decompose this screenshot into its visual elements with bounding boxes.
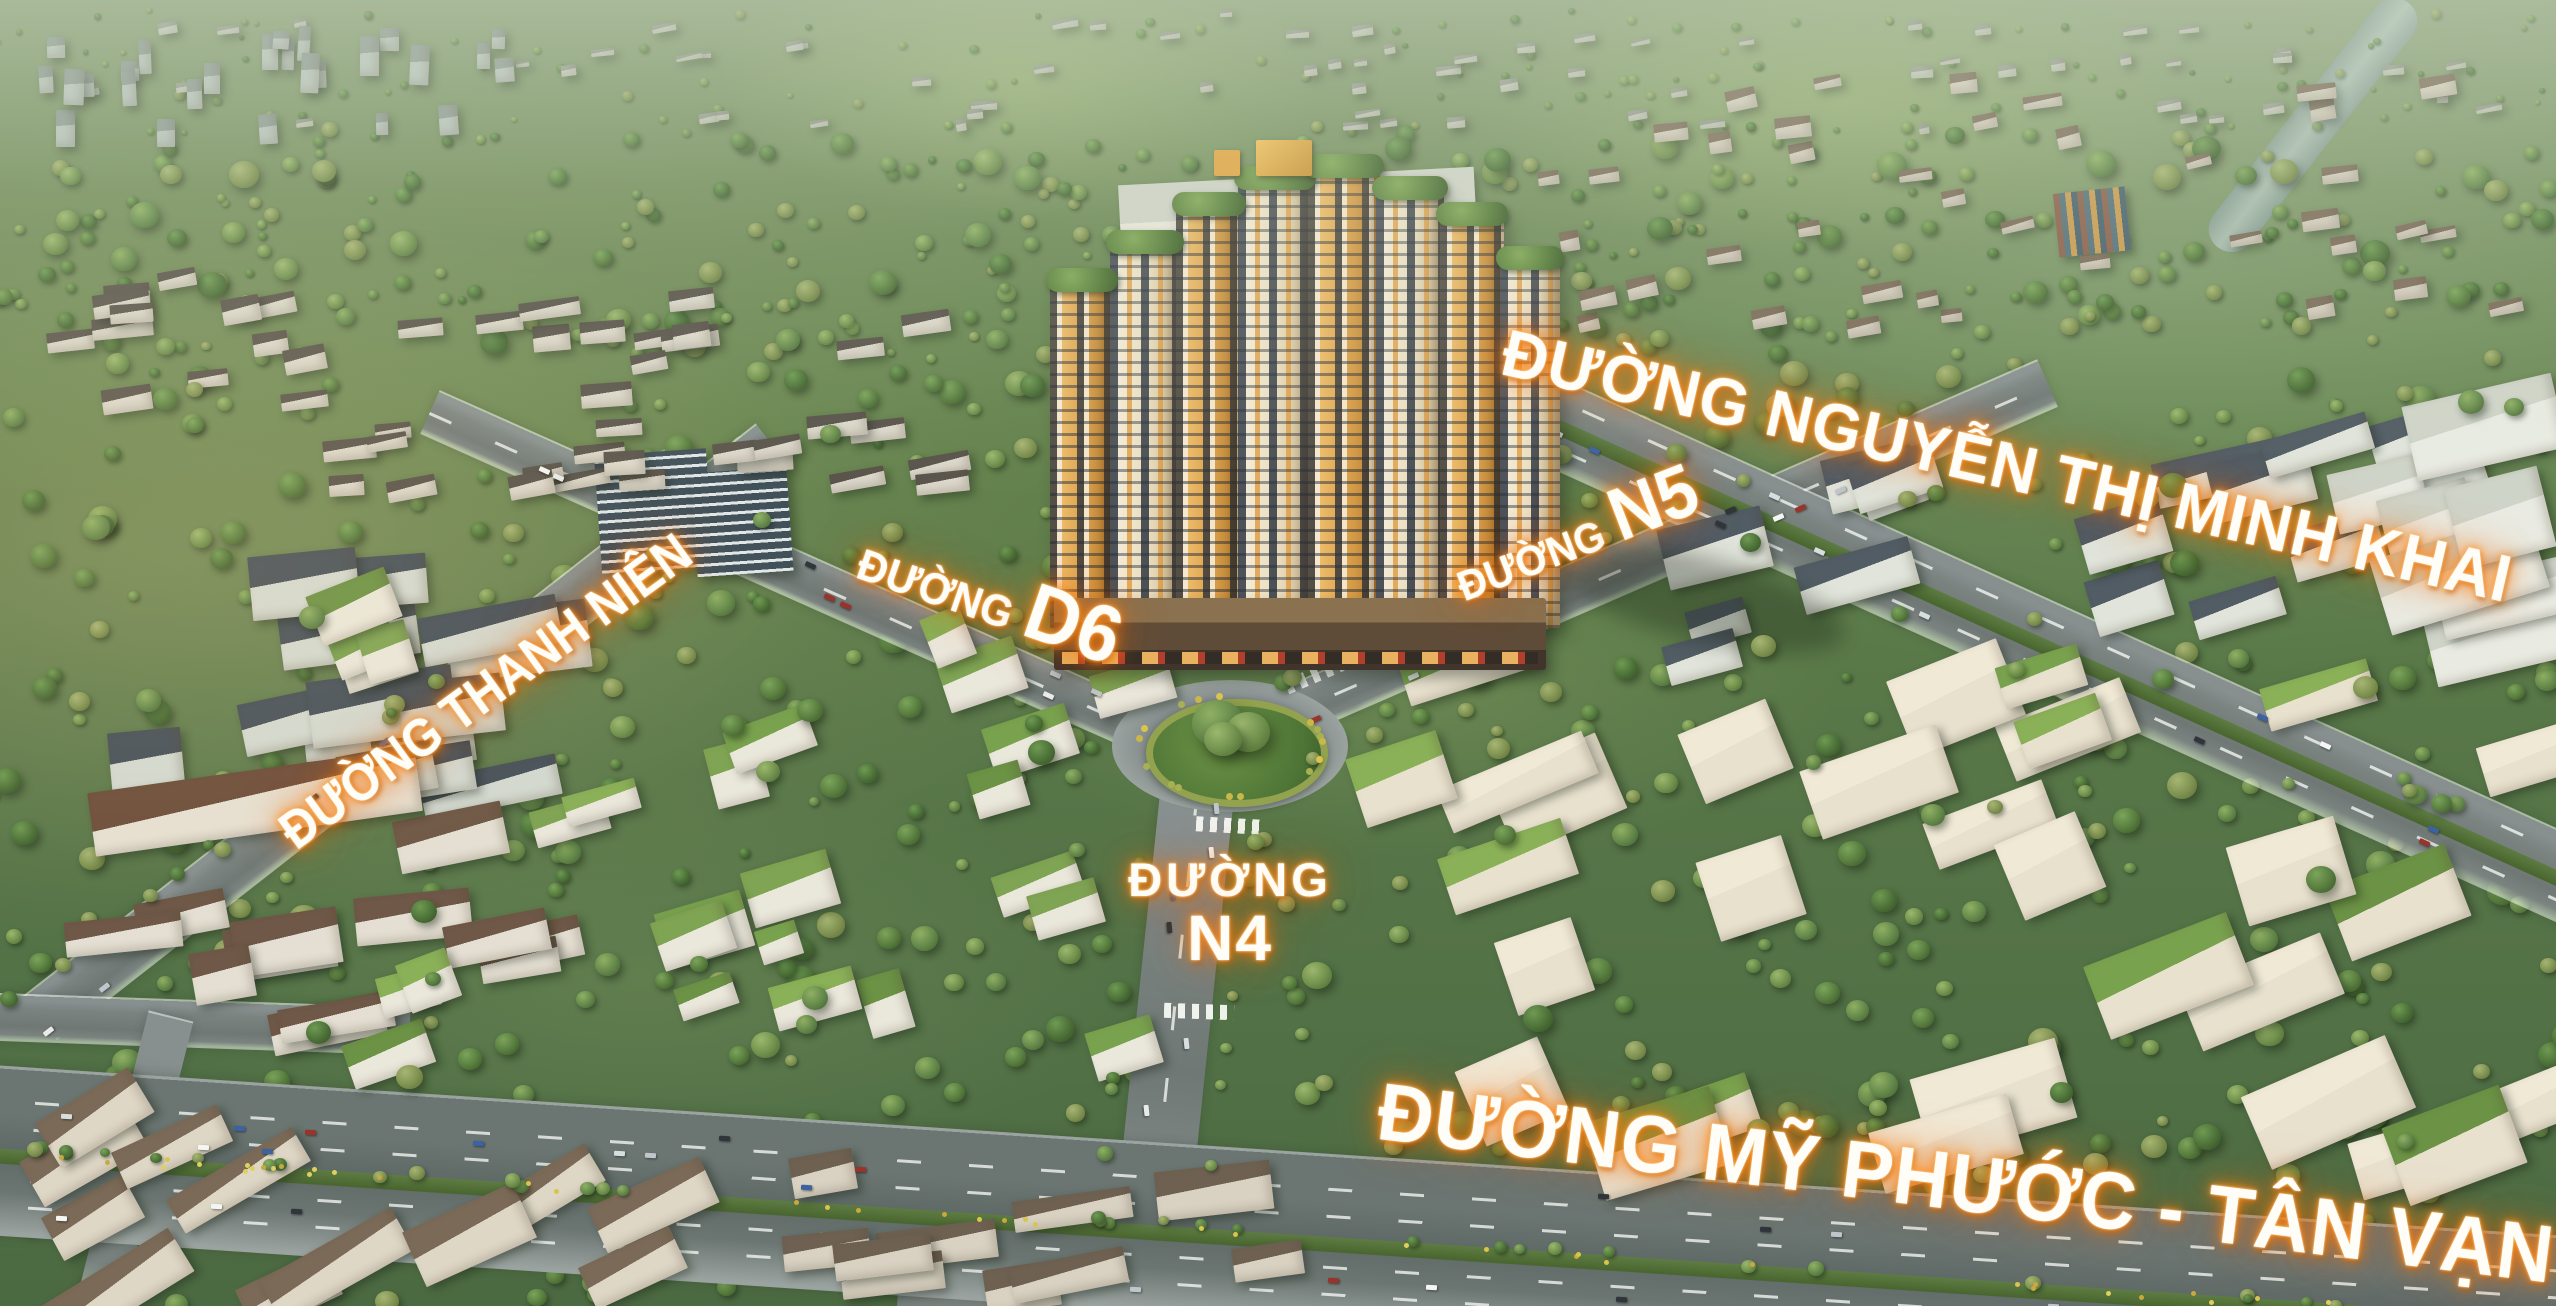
building	[329, 474, 365, 497]
tree	[1650, 330, 1669, 347]
tree	[2193, 1124, 2221, 1149]
tree	[357, 218, 372, 232]
tree	[2183, 242, 2205, 261]
tree	[595, 953, 620, 976]
rooftop-garden	[1172, 192, 1246, 216]
tree	[2312, 122, 2323, 132]
aerial-masterplan-scene: ĐƯỜNG THANH NIÊN ĐƯỜNG D6 ĐƯỜNG N5 ĐƯỜNG…	[0, 0, 2556, 1306]
tree	[160, 165, 182, 185]
tree	[788, 298, 799, 308]
tree	[2397, 1134, 2414, 1149]
tree	[2442, 246, 2454, 257]
tree	[390, 231, 418, 256]
tree	[2334, 289, 2346, 300]
tree	[721, 313, 732, 323]
building	[1653, 121, 1689, 142]
tree	[730, 132, 748, 148]
tree	[1629, 248, 1638, 256]
building	[492, 29, 505, 49]
roundabout-flowers	[1314, 726, 1321, 733]
median-flowers	[2139, 1295, 2144, 1300]
tree	[1091, 1211, 1106, 1224]
building	[300, 53, 319, 94]
tree	[915, 1057, 940, 1080]
tree	[911, 926, 938, 951]
building	[494, 58, 515, 83]
tree	[2540, 958, 2556, 973]
tree	[1959, 167, 1974, 180]
tree	[2402, 784, 2417, 797]
tree	[637, 199, 654, 215]
building	[1351, 83, 1366, 95]
tree	[1548, 1242, 1562, 1255]
tree	[721, 715, 744, 736]
tree	[748, 223, 763, 237]
tree	[94, 13, 101, 19]
tree	[593, 249, 612, 266]
tree	[495, 1033, 519, 1055]
tree	[1028, 152, 1044, 167]
tree	[2431, 9, 2441, 18]
tree	[1256, 56, 1266, 65]
building	[716, 110, 729, 120]
rooftop-garden	[1304, 154, 1384, 178]
roundabout-flowers	[1226, 793, 1233, 800]
tree	[2157, 1116, 2168, 1126]
tree	[2228, 123, 2234, 129]
tree	[672, 868, 690, 884]
car	[233, 1125, 244, 1131]
building	[409, 44, 430, 85]
tree	[2446, 285, 2471, 308]
tree	[2116, 89, 2125, 97]
building	[1200, 82, 1214, 93]
building	[438, 105, 459, 136]
tree	[555, 754, 568, 766]
tree	[1437, 93, 1444, 100]
building	[1919, 123, 1930, 134]
building	[1383, 43, 1395, 55]
tree	[375, 1291, 398, 1306]
tree	[1887, 19, 1893, 24]
tree	[1962, 901, 1986, 922]
tree	[313, 136, 325, 147]
median-flowers	[332, 1170, 337, 1175]
median-flowers	[1750, 1262, 1755, 1267]
tree	[1905, 908, 1924, 925]
tree	[242, 56, 249, 62]
tree	[603, 679, 623, 697]
tree	[1833, 127, 1840, 133]
tree	[2142, 316, 2160, 333]
tree	[2403, 103, 2411, 110]
tree	[2504, 398, 2524, 416]
tree	[1720, 47, 1728, 54]
tree	[1653, 185, 1666, 196]
tree	[1392, 876, 1407, 890]
building	[2321, 164, 2359, 184]
tree	[1885, 207, 1904, 224]
tree	[1987, 800, 2003, 814]
tower-slab	[1376, 186, 1444, 628]
roundabout-flowers	[1178, 701, 1185, 708]
median-flowers	[1604, 1260, 1609, 1265]
tree	[787, 257, 798, 267]
tree	[1107, 982, 1130, 1003]
tree	[2225, 76, 2231, 82]
tree	[1066, 1104, 1086, 1122]
tree	[776, 329, 801, 351]
tree	[2270, 159, 2298, 184]
building	[1286, 29, 1309, 38]
tree	[1878, 952, 1894, 966]
tree	[396, 1065, 423, 1089]
tree	[1864, 712, 1879, 725]
car	[305, 1130, 316, 1136]
building	[187, 79, 203, 109]
tree	[368, 196, 376, 203]
tree	[2292, 317, 2312, 335]
tree	[858, 389, 879, 408]
tree	[2458, 390, 2484, 414]
tree	[1028, 740, 1055, 765]
tree	[880, 157, 896, 172]
tree	[2473, 1064, 2490, 1079]
tree	[150, 1153, 161, 1163]
car	[801, 1185, 812, 1191]
tree	[438, 293, 451, 304]
building	[603, 450, 645, 476]
tree	[2484, 180, 2508, 201]
tree	[1922, 27, 1932, 36]
tree	[212, 97, 221, 106]
tree	[1646, 92, 1654, 100]
roundabout-flowers	[1319, 738, 1326, 745]
tree	[222, 222, 245, 243]
tree	[476, 135, 485, 143]
car	[198, 1145, 209, 1151]
roundabout-flowers	[1143, 763, 1150, 770]
tree	[1987, 248, 1999, 259]
building	[139, 40, 152, 75]
tree	[505, 1173, 521, 1187]
tree	[556, 869, 571, 882]
rooftop-feature	[1256, 140, 1312, 176]
tree	[74, 569, 94, 587]
tree	[753, 512, 771, 528]
tree	[1585, 239, 1598, 250]
tree	[16, 29, 23, 35]
tree	[707, 590, 735, 615]
building	[911, 76, 930, 86]
tree	[1295, 1028, 1309, 1041]
tree	[2061, 23, 2069, 31]
tree	[690, 956, 707, 972]
tree	[999, 283, 1010, 293]
building	[1908, 21, 1923, 31]
tree	[299, 606, 325, 629]
median-flowers	[2106, 1291, 2111, 1296]
tree	[55, 958, 71, 972]
tree	[969, 332, 978, 341]
building	[56, 110, 75, 147]
tree	[2353, 676, 2378, 698]
tree	[699, 262, 722, 283]
tree	[2035, 213, 2052, 228]
building	[1090, 21, 1107, 31]
median-flowers	[1404, 1243, 1409, 1248]
road-label-n4-line2: N4	[1187, 905, 1273, 972]
tree	[147, 128, 154, 134]
car	[1598, 1194, 1609, 1200]
car	[1130, 1287, 1141, 1293]
tree	[623, 132, 640, 147]
building	[1708, 131, 1732, 155]
tree	[1366, 727, 1383, 743]
building	[121, 69, 136, 107]
building	[1327, 58, 1342, 69]
tree	[632, 190, 641, 198]
tree	[1846, 309, 1857, 319]
building	[47, 37, 65, 59]
building	[1517, 43, 1536, 54]
tree	[555, 840, 581, 864]
tree	[364, 11, 373, 19]
tree	[106, 353, 129, 374]
tree	[677, 647, 695, 663]
tree	[1654, 773, 1677, 794]
tree	[1751, 635, 1776, 657]
tree	[336, 308, 355, 325]
tree	[2022, 128, 2038, 142]
tree	[807, 218, 820, 229]
tree	[80, 231, 95, 244]
building	[1499, 77, 1519, 91]
tree	[1838, 841, 1866, 866]
tree	[1526, 64, 1532, 70]
rooftop-garden	[1436, 202, 1508, 226]
tree	[1407, 1236, 1419, 1246]
tree	[1651, 880, 1675, 902]
tree	[956, 159, 972, 173]
tree	[1907, 940, 1930, 960]
tree	[2397, 772, 2411, 785]
tree	[759, 145, 777, 161]
glass-office-tower	[690, 467, 793, 577]
tree	[1014, 166, 1041, 191]
tree	[576, 991, 595, 1008]
tree	[986, 79, 996, 88]
building	[2309, 97, 2337, 122]
tree	[2010, 292, 2021, 302]
tree	[11, 821, 38, 845]
tree	[1898, 491, 1916, 508]
building	[2383, 64, 2405, 75]
tree	[2265, 227, 2279, 239]
tree	[27, 1142, 43, 1156]
tree	[1494, 1241, 1507, 1252]
checker-facade-building	[2053, 186, 2131, 257]
tree	[1945, 127, 1964, 144]
tree	[820, 425, 840, 443]
tree	[751, 1032, 780, 1058]
tree	[1912, 1008, 1934, 1028]
tree	[1857, 258, 1869, 269]
tree	[214, 842, 231, 857]
tree	[729, 1046, 749, 1064]
tree	[2531, 209, 2555, 230]
building	[1797, 220, 1821, 237]
tree	[2158, 251, 2171, 263]
tree	[2535, 669, 2556, 691]
tree	[1746, 122, 1757, 132]
tree	[2189, 70, 2195, 75]
building	[1774, 115, 1812, 139]
tree	[796, 280, 820, 302]
tree	[2277, 82, 2287, 91]
tree	[2397, 386, 2413, 401]
tree	[312, 160, 337, 182]
building	[516, 60, 529, 68]
tree	[2431, 794, 2452, 813]
tree	[2243, 1294, 2253, 1303]
tree	[2113, 808, 2140, 832]
tree	[470, 522, 489, 539]
tree	[1025, 715, 1043, 731]
building	[1220, 9, 1232, 16]
tree	[2260, 318, 2271, 328]
tree	[149, 368, 159, 377]
roundabout-flowers	[1307, 719, 1314, 726]
tree	[442, 136, 454, 147]
tree	[534, 230, 549, 243]
building	[1941, 308, 1963, 323]
building	[376, 113, 389, 135]
tree	[1612, 823, 1637, 846]
tree	[56, 210, 79, 231]
building	[157, 118, 176, 147]
tree	[2356, 993, 2369, 1005]
tree	[2244, 22, 2250, 28]
tree	[1020, 374, 1045, 397]
building	[2296, 82, 2336, 101]
tree	[69, 692, 90, 711]
tree	[2540, 180, 2556, 197]
building	[966, 109, 983, 120]
tree	[1871, 889, 1897, 912]
building	[2119, 53, 2131, 66]
tree	[130, 202, 158, 228]
tree	[642, 313, 659, 328]
tree	[2287, 219, 2298, 229]
tree	[424, 1016, 438, 1029]
tree	[2342, 257, 2361, 275]
tree	[1793, 241, 1806, 253]
rooftop-garden	[1496, 246, 1564, 270]
car	[1327, 1278, 1338, 1284]
tree	[1022, 1030, 1045, 1050]
tree	[527, 1289, 547, 1306]
tree	[956, 859, 968, 870]
tree	[1220, 1043, 1232, 1054]
tree	[1584, 220, 1593, 228]
tree	[170, 867, 185, 881]
tree	[857, 764, 878, 783]
tree	[2527, 15, 2534, 22]
tree	[2507, 684, 2525, 700]
tree	[1663, 294, 1675, 305]
tree	[747, 362, 770, 382]
building	[2329, 234, 2356, 255]
tree	[1817, 225, 1842, 247]
tree	[944, 121, 953, 129]
median-flowers	[2015, 1282, 2020, 1287]
tree	[621, 222, 630, 230]
rooftop-garden	[1046, 268, 1118, 292]
tree	[503, 524, 523, 542]
tree	[458, 296, 466, 304]
tower-slab	[1110, 240, 1180, 628]
tree	[1869, 1072, 1898, 1098]
tree	[257, 220, 266, 228]
tree	[2493, 282, 2509, 296]
tree	[2301, 1297, 2312, 1306]
tree	[842, 547, 861, 564]
tree	[1282, 976, 1297, 990]
tree	[153, 388, 178, 410]
tree	[1205, 1160, 1217, 1171]
tree	[257, 245, 271, 258]
tree	[14, 225, 24, 234]
tree	[1097, 1146, 1113, 1160]
tree	[2086, 150, 2116, 177]
median-flowers	[2209, 1300, 2214, 1305]
tree	[264, 208, 279, 221]
tree	[394, 275, 411, 290]
tree	[73, 714, 86, 726]
tree	[2371, 87, 2376, 92]
tree	[617, 1185, 628, 1195]
tree	[2415, 149, 2433, 165]
tree	[1802, 316, 1820, 332]
tree	[1860, 213, 1869, 221]
tree	[266, 892, 279, 904]
tree	[60, 167, 81, 186]
road-label-n4-line1: ĐƯỜNG	[1128, 856, 1332, 905]
tree	[82, 515, 110, 540]
building	[109, 302, 153, 324]
tree	[610, 759, 621, 769]
median-flowers	[250, 1166, 255, 1171]
tree	[2380, 114, 2388, 121]
tree	[596, 1182, 611, 1195]
median-flowers	[161, 1165, 166, 1170]
rooftop-garden	[1106, 230, 1184, 254]
tree	[753, 596, 770, 612]
tree	[797, 699, 823, 722]
tree	[700, 78, 709, 86]
tree	[1808, 1261, 1824, 1275]
tree	[830, 133, 854, 154]
tree	[986, 973, 1006, 991]
tree	[2235, 166, 2256, 185]
tower-slab	[1176, 202, 1242, 628]
tree	[1084, 741, 1098, 754]
tree	[817, 912, 845, 937]
building	[580, 320, 627, 345]
tree	[2206, 285, 2222, 300]
tree	[1604, 91, 1610, 97]
